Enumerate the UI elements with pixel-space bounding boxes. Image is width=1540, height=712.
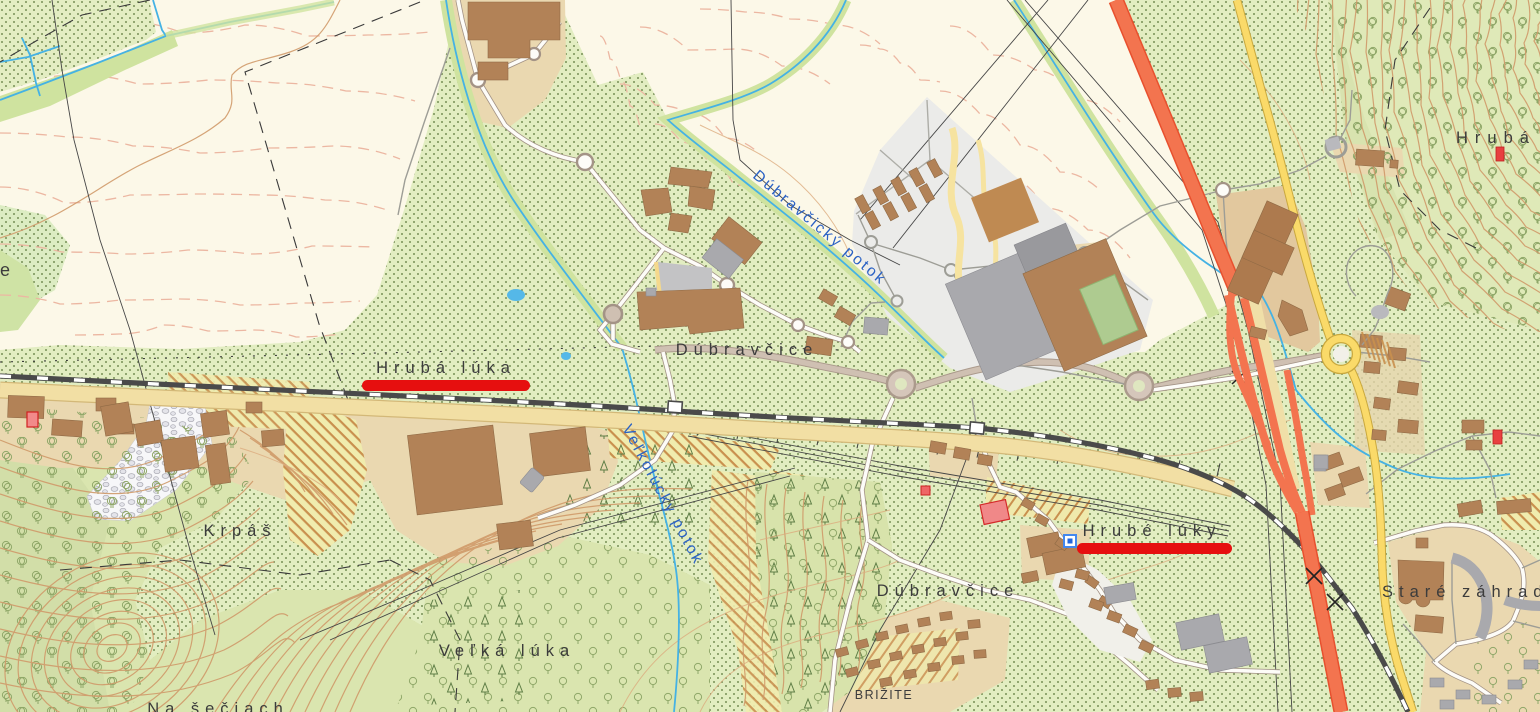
svg-text:Hrubá: Hrubá bbox=[1456, 129, 1536, 147]
svg-text:Na šečiach: Na šečiach bbox=[147, 700, 289, 712]
svg-text:Dúbravčice: Dúbravčice bbox=[877, 582, 1020, 600]
svg-text:Veľká lúka: Veľká lúka bbox=[439, 642, 575, 660]
svg-text:Hrubá lúka: Hrubá lúka bbox=[376, 359, 516, 377]
svg-text:Hrubé lúky: Hrubé lúky bbox=[1083, 522, 1222, 540]
svg-text:Staré záhrad: Staré záhrad bbox=[1382, 583, 1540, 601]
svg-text:Krpáš: Krpáš bbox=[203, 522, 276, 540]
svg-text:BRIŽITE: BRIŽITE bbox=[855, 687, 913, 702]
svg-text:Dúbravčice: Dúbravčice bbox=[676, 341, 819, 359]
svg-text:e: e bbox=[0, 260, 10, 280]
